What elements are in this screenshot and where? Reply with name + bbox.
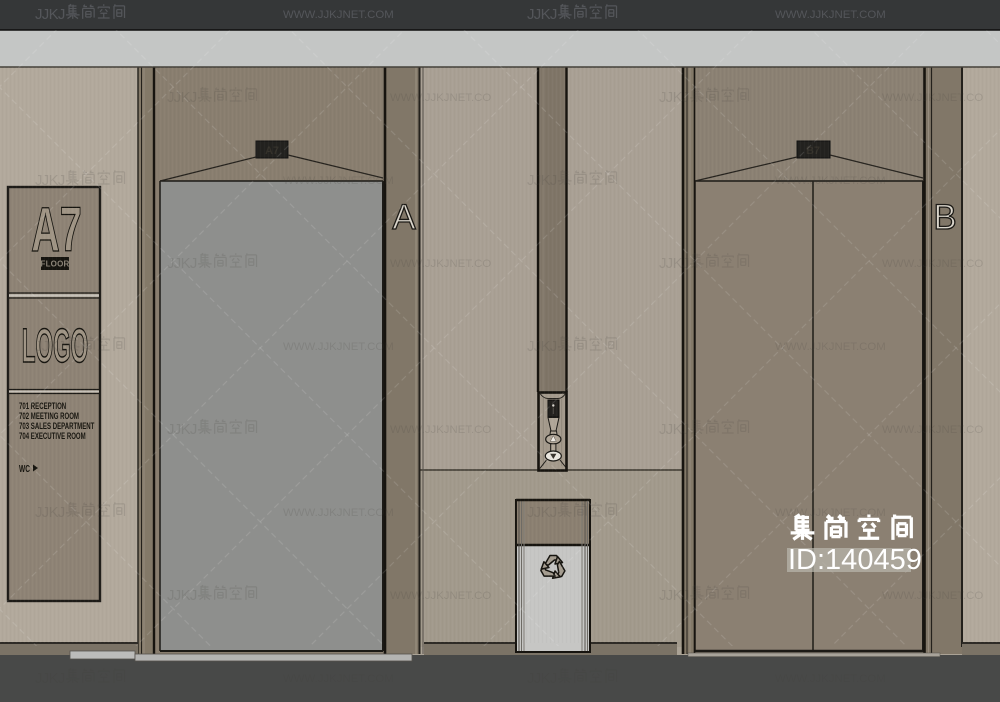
svg-text:ID:140459: ID:140459 xyxy=(788,544,922,576)
